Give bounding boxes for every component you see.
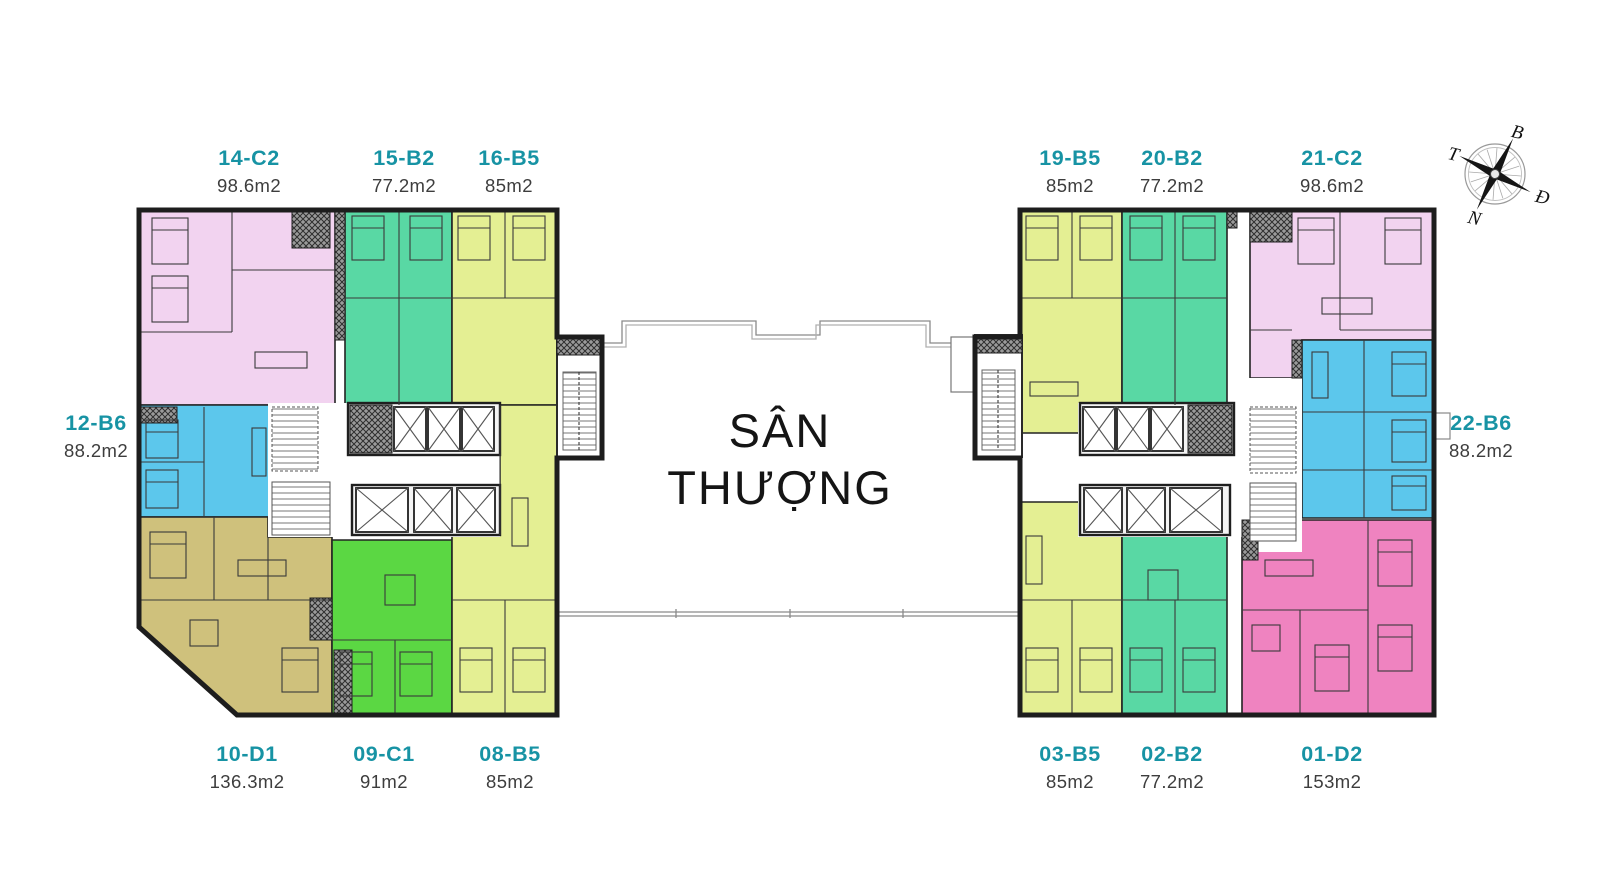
unit-area: 98.6m2 xyxy=(217,175,281,197)
compass-west-label: T xyxy=(1446,143,1463,166)
unit-label-01-D2: 01-D2 153m2 xyxy=(1301,742,1363,793)
left-core-stair xyxy=(272,407,318,471)
unit-area: 153m2 xyxy=(1301,771,1363,793)
terrace-title-line1: SÂN xyxy=(667,402,893,459)
unit-area: 85m2 xyxy=(479,771,541,793)
terrace-title: SÂN THƯỢNG xyxy=(667,402,893,516)
left-building xyxy=(139,210,602,715)
unit-label-09-C1: 09-C1 91m2 xyxy=(353,742,415,793)
unit-code: 15-B2 xyxy=(372,146,436,171)
unit-code: 01-D2 xyxy=(1301,742,1363,767)
unit-19-B5-shape xyxy=(1020,210,1122,433)
unit-area: 85m2 xyxy=(478,175,540,197)
right-core-stair xyxy=(1250,407,1296,473)
unit-code: 20-B2 xyxy=(1140,146,1204,171)
unit-area: 88.2m2 xyxy=(64,440,128,462)
unit-label-19-B5: 19-B5 85m2 xyxy=(1039,146,1101,197)
compass-rose: B T Đ N xyxy=(1441,120,1552,231)
unit-label-21-C2: 21-C2 98.6m2 xyxy=(1300,146,1364,197)
left-elevator-bank-top xyxy=(348,403,500,455)
floor-plan-page: B T Đ N SÂN THƯỢNG 14-C2 98.6m2 15-B2 77… xyxy=(0,0,1600,892)
unit-10-D1-shape xyxy=(139,517,332,715)
unit-label-10-D1: 10-D1 136.3m2 xyxy=(210,742,285,793)
right-elevator-bank-bottom xyxy=(1080,485,1230,535)
unit-code: 14-C2 xyxy=(217,146,281,171)
unit-label-02-B2: 02-B2 77.2m2 xyxy=(1140,742,1204,793)
unit-code: 12-B6 xyxy=(64,411,128,436)
unit-label-12-B6: 12-B6 88.2m2 xyxy=(64,411,128,462)
unit-code: 21-C2 xyxy=(1300,146,1364,171)
compass-east-label: Đ xyxy=(1532,186,1552,210)
compass-south-label: N xyxy=(1465,207,1485,231)
unit-label-15-B2: 15-B2 77.2m2 xyxy=(372,146,436,197)
unit-area: 98.6m2 xyxy=(1300,175,1364,197)
right-terrace-stairwell xyxy=(951,335,1022,457)
unit-area: 85m2 xyxy=(1039,175,1101,197)
unit-code: 08-B5 xyxy=(479,742,541,767)
unit-area: 88.2m2 xyxy=(1449,440,1513,462)
unit-area: 91m2 xyxy=(353,771,415,793)
unit-code: 16-B5 xyxy=(478,146,540,171)
terrace-title-line2: THƯỢNG xyxy=(667,459,893,516)
unit-code: 10-D1 xyxy=(210,742,285,767)
unit-code: 09-C1 xyxy=(353,742,415,767)
compass-north-label: B xyxy=(1509,121,1526,144)
unit-label-03-B5: 03-B5 85m2 xyxy=(1039,742,1101,793)
unit-label-08-B5: 08-B5 85m2 xyxy=(479,742,541,793)
left-lobby-stair xyxy=(272,482,330,535)
right-building xyxy=(951,210,1450,715)
unit-area: 77.2m2 xyxy=(1140,771,1204,793)
unit-22-B6-shape xyxy=(1302,340,1434,518)
unit-label-20-B2: 20-B2 77.2m2 xyxy=(1140,146,1204,197)
unit-label-16-B5: 16-B5 85m2 xyxy=(478,146,540,197)
unit-code: 19-B5 xyxy=(1039,146,1101,171)
unit-code: 02-B2 xyxy=(1140,742,1204,767)
unit-code: 03-B5 xyxy=(1039,742,1101,767)
unit-area: 136.3m2 xyxy=(210,771,285,793)
unit-area: 77.2m2 xyxy=(1140,175,1204,197)
unit-area: 85m2 xyxy=(1039,771,1101,793)
unit-label-22-B6: 22-B6 88.2m2 xyxy=(1449,411,1513,462)
unit-label-14-C2: 14-C2 98.6m2 xyxy=(217,146,281,197)
right-lobby-stair xyxy=(1250,483,1296,541)
unit-area: 77.2m2 xyxy=(372,175,436,197)
left-elevator-bank-bottom xyxy=(352,485,500,535)
right-elevator-bank-top xyxy=(1080,403,1234,455)
left-terrace-stairwell xyxy=(557,337,602,458)
unit-code: 22-B6 xyxy=(1449,411,1513,436)
